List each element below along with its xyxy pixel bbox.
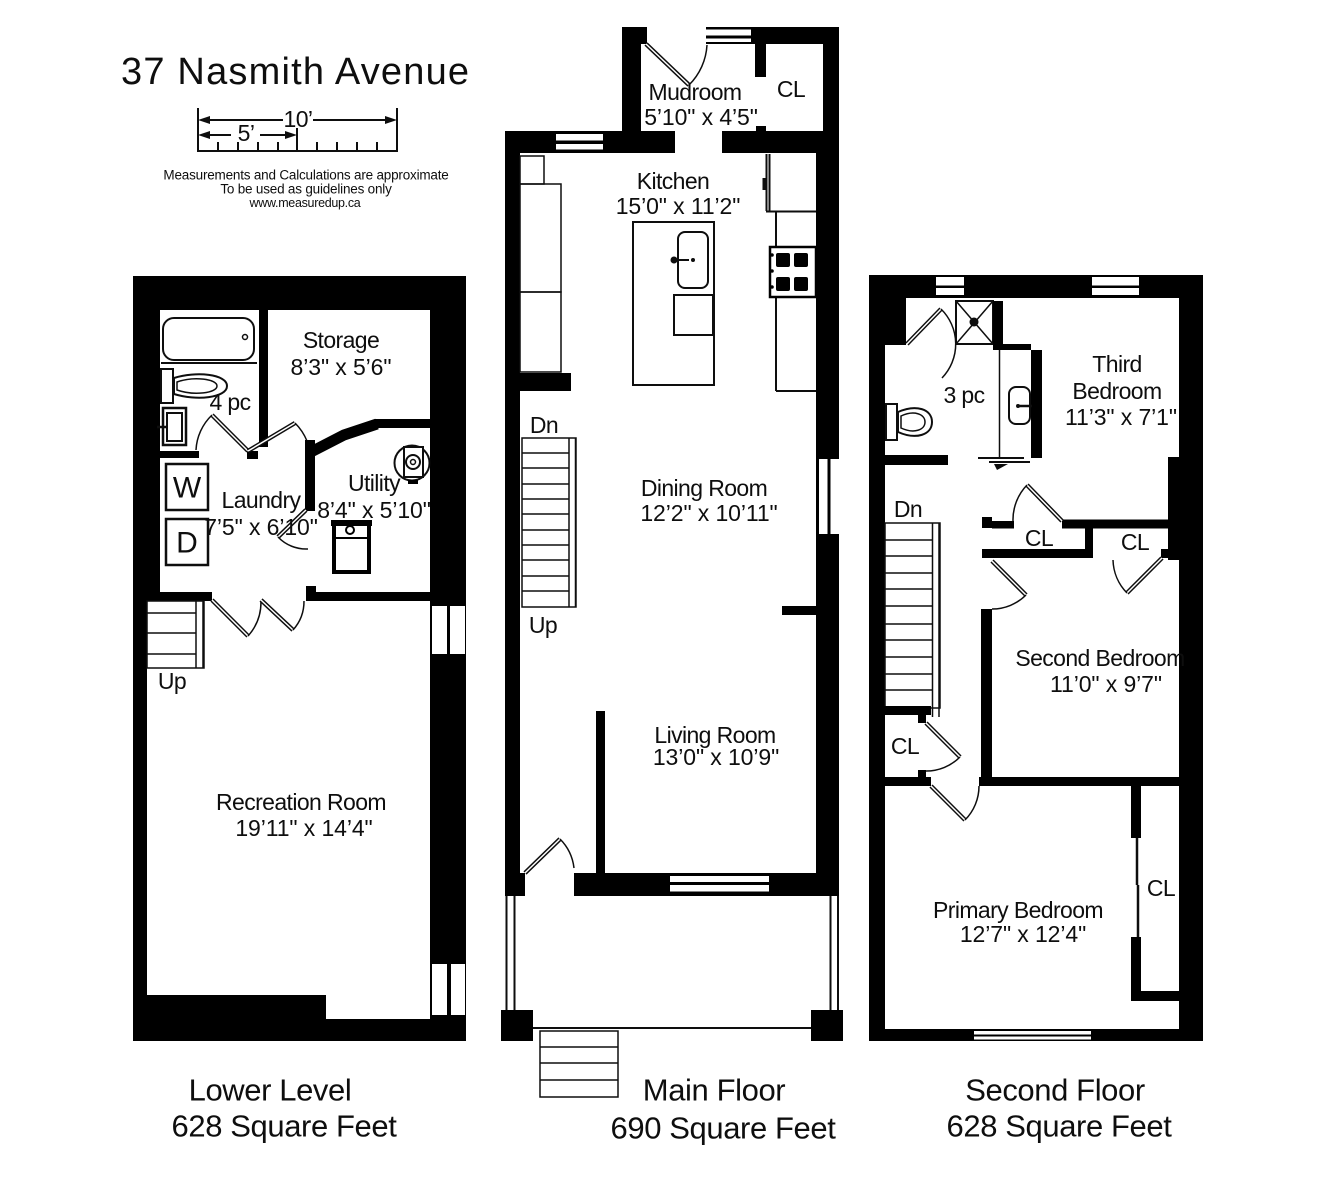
svg-text:5’10" x 4’5": 5’10" x 4’5": [644, 104, 758, 130]
svg-text:690 Square Feet: 690 Square Feet: [611, 1111, 837, 1146]
svg-text:Kitchen: Kitchen: [637, 168, 710, 194]
svg-text:CL: CL: [1121, 529, 1150, 555]
svg-text:Measurements and Calculations: Measurements and Calculations are approx…: [163, 168, 448, 183]
svg-text:Second Floor: Second Floor: [965, 1073, 1145, 1108]
svg-text:CL: CL: [1147, 875, 1176, 901]
svg-text:Storage: Storage: [303, 327, 379, 353]
svg-text:Laundry: Laundry: [222, 487, 302, 513]
svg-text:Dining Room: Dining Room: [641, 475, 767, 501]
svg-text:Recreation Room: Recreation Room: [216, 789, 386, 815]
svg-text:Dn: Dn: [894, 496, 922, 522]
svg-text:15’0" x 11’2": 15’0" x 11’2": [616, 193, 741, 219]
svg-text:3 pc: 3 pc: [943, 382, 984, 408]
svg-text:Up: Up: [158, 668, 186, 694]
svg-text:11’3" x 7’1": 11’3" x 7’1": [1065, 404, 1177, 430]
svg-text:5’: 5’: [238, 120, 255, 146]
svg-text:To be used as guidelines only: To be used as guidelines only: [220, 182, 392, 197]
svg-text:4 pc: 4 pc: [209, 389, 250, 415]
svg-text:Dn: Dn: [530, 412, 558, 438]
svg-text:www.measuredup.ca: www.measuredup.ca: [249, 196, 361, 210]
svg-text:12’2" x 10’11": 12’2" x 10’11": [640, 500, 777, 526]
svg-text:11’0" x 9’7": 11’0" x 9’7": [1050, 671, 1162, 697]
svg-text:CL: CL: [891, 733, 920, 759]
svg-text:CL: CL: [1025, 525, 1054, 551]
svg-text:D: D: [176, 527, 198, 560]
svg-text:Primary Bedroom: Primary Bedroom: [933, 897, 1103, 923]
svg-text:10’: 10’: [284, 106, 313, 132]
svg-text:Main Floor: Main Floor: [643, 1073, 786, 1108]
svg-text:Third: Third: [1092, 351, 1141, 377]
svg-text:8’4" x 5’10": 8’4" x 5’10": [317, 497, 431, 523]
svg-text:W: W: [173, 472, 202, 505]
svg-text:Bedroom: Bedroom: [1072, 378, 1161, 404]
svg-text:Second Bedroom: Second Bedroom: [1015, 645, 1184, 671]
svg-text:37 Nasmith Avenue: 37 Nasmith Avenue: [121, 51, 470, 93]
svg-text:CL: CL: [777, 76, 806, 102]
svg-text:628 Square Feet: 628 Square Feet: [947, 1109, 1173, 1144]
svg-text:13’0" x 10’9": 13’0" x 10’9": [653, 744, 779, 770]
svg-text:Utility: Utility: [348, 470, 401, 496]
svg-text:Up: Up: [529, 612, 557, 638]
svg-text:628 Square Feet: 628 Square Feet: [172, 1109, 398, 1144]
svg-text:12’7" x 12’4": 12’7" x 12’4": [960, 921, 1086, 947]
svg-text:19’11" x 14’4": 19’11" x 14’4": [235, 815, 372, 841]
svg-text:Lower Level: Lower Level: [189, 1073, 352, 1108]
svg-text:8’3" x 5’6": 8’3" x 5’6": [291, 354, 392, 380]
svg-text:Mudroom: Mudroom: [649, 79, 742, 105]
svg-text:7’5" x 6’10": 7’5" x 6’10": [204, 514, 318, 540]
